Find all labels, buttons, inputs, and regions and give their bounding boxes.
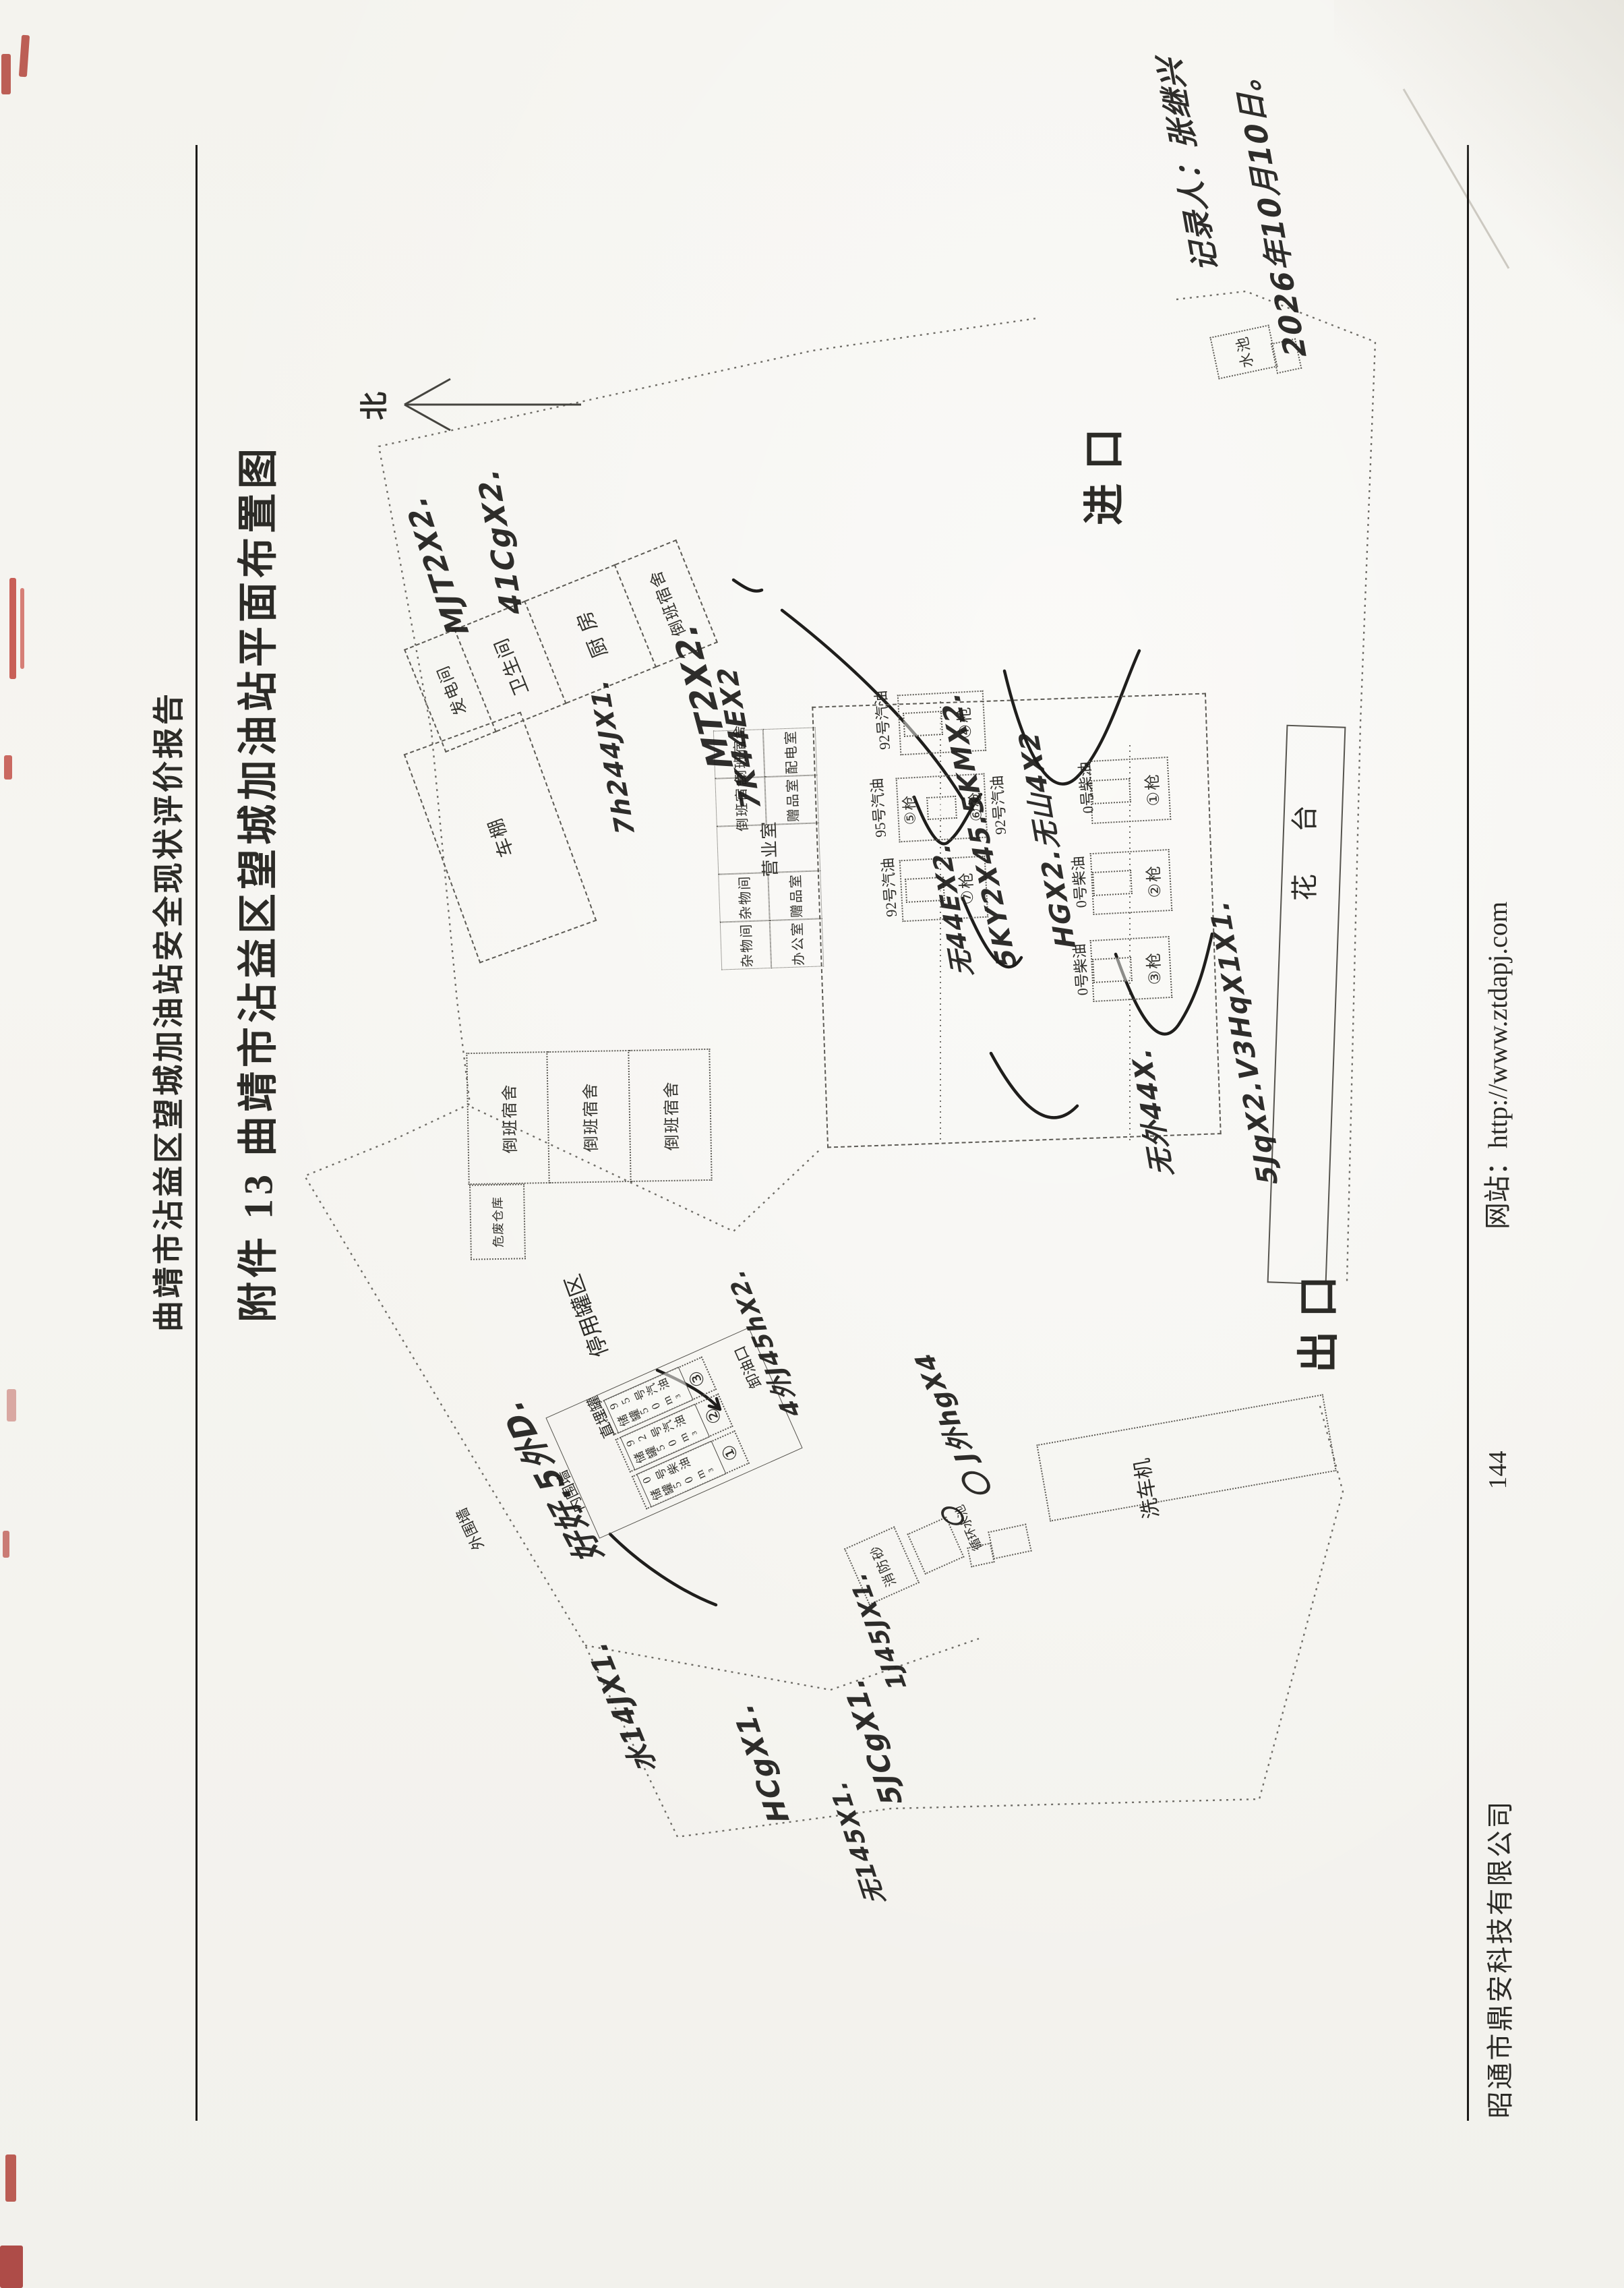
fuel-label-diesel: 0号柴油 (1073, 761, 1097, 814)
page-title: 附件 13 曲靖市沾益区望城加油站平面布置图 (226, 444, 284, 1322)
scan-fold-shading (1334, 0, 1624, 324)
room-dorm-b: 倒班宿舍 (547, 1050, 631, 1183)
tank-number: ② (700, 1404, 726, 1428)
fuel-label-diesel: 0号柴油 (1067, 943, 1092, 996)
footer-company: 昭通市鼎安科技有限公司 (1478, 1800, 1517, 2119)
fuel-label-92: 92号汽油 (876, 857, 901, 918)
footer-rule (1467, 145, 1469, 2121)
fuel-dispenser-icon (926, 796, 957, 820)
dispenser-island-2: ②枪 (1090, 849, 1173, 915)
room-office: 办公室 (770, 918, 824, 968)
entrance-label: 进口 (1070, 415, 1131, 525)
fuel-dispenser-icon (1092, 870, 1133, 896)
header-rule (196, 145, 198, 2121)
room-dorm-a: 倒班宿舍 (466, 1051, 549, 1185)
north-arrow-icon (404, 379, 581, 430)
scan-artifact (3, 1531, 9, 1558)
fuel-label-92: 92号汽油 (869, 690, 895, 751)
report-header: 曲靖市沾益区望城加油站安全现状评价报告 (144, 691, 189, 1332)
compass-north-label: 北 (352, 392, 393, 420)
fuel-dispenser-icon (1092, 957, 1133, 983)
fuel-dispenser-icon (903, 711, 943, 737)
room-gift-1: 赠品室 (764, 775, 818, 825)
footer-page-number: 144 (1483, 1451, 1513, 1490)
scan-artifact (20, 588, 24, 669)
tank-number: ③ (684, 1367, 710, 1390)
exit-label: 出口 (1284, 1262, 1345, 1373)
dorm-row-building: 倒班宿舍 倒班宿舍 倒班宿舍 (466, 1049, 712, 1185)
room-dorm-c: 倒班宿舍 (629, 1049, 712, 1182)
tank-number: ① (717, 1440, 743, 1464)
scan-artifact (9, 578, 16, 679)
room-storage-1: 杂物间 (718, 873, 769, 922)
scan-artifact (5, 2154, 16, 2202)
footer-website: 网站：http://www.ztdapj.com (1476, 902, 1515, 1229)
room-power-dist: 配电室 (763, 727, 817, 777)
fuel-label-95: 95号汽油 (865, 778, 891, 838)
scan-artifact (7, 1389, 16, 1421)
flower-bed-label: 花 台 (1283, 788, 1322, 901)
dispenser-island-3: ③枪 (1090, 936, 1173, 1002)
room-storage-2: 杂物间 (720, 920, 771, 970)
scan-artifact (1, 54, 11, 94)
room-gift-2: 赠品室 (768, 871, 822, 920)
scanned-page: { "page": { "header_title": "曲靖市沾益区望城加油站… (0, 0, 1624, 2288)
scan-artifact (0, 2246, 23, 2288)
dispenser-island-1: ①枪 (1089, 757, 1172, 824)
scan-artifact (4, 755, 12, 780)
hazwaste-store: 危废仓库 (469, 1183, 526, 1260)
